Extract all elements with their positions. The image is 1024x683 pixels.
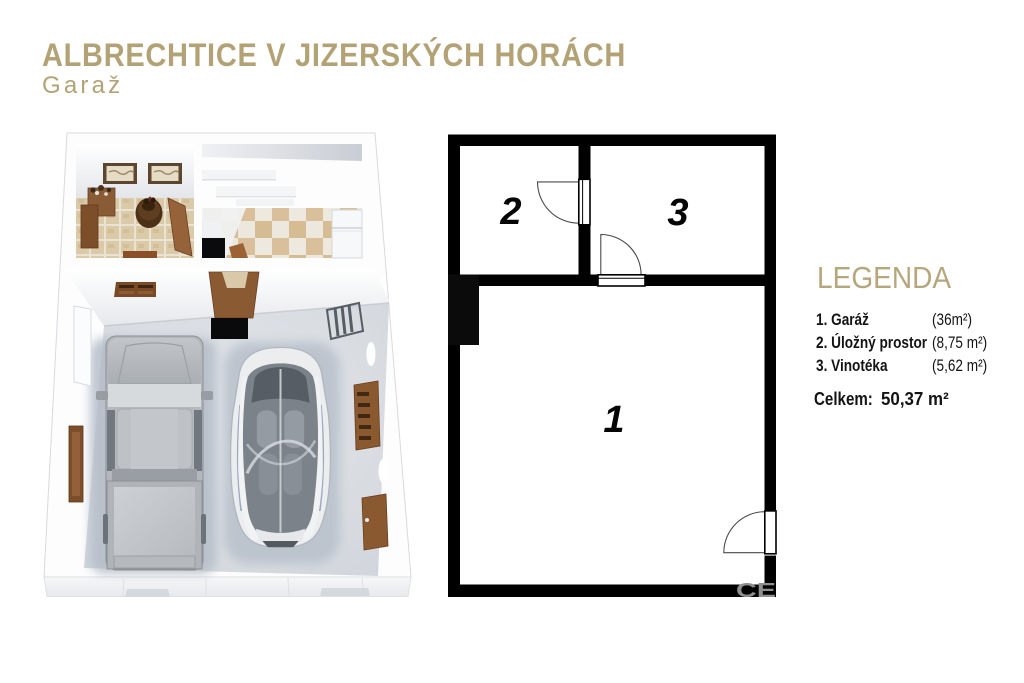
svg-text:2: 2 bbox=[499, 191, 521, 233]
svg-text:CE: CE bbox=[736, 580, 776, 602]
svg-text:1: 1 bbox=[603, 399, 624, 441]
svg-text:3: 3 bbox=[667, 192, 688, 234]
